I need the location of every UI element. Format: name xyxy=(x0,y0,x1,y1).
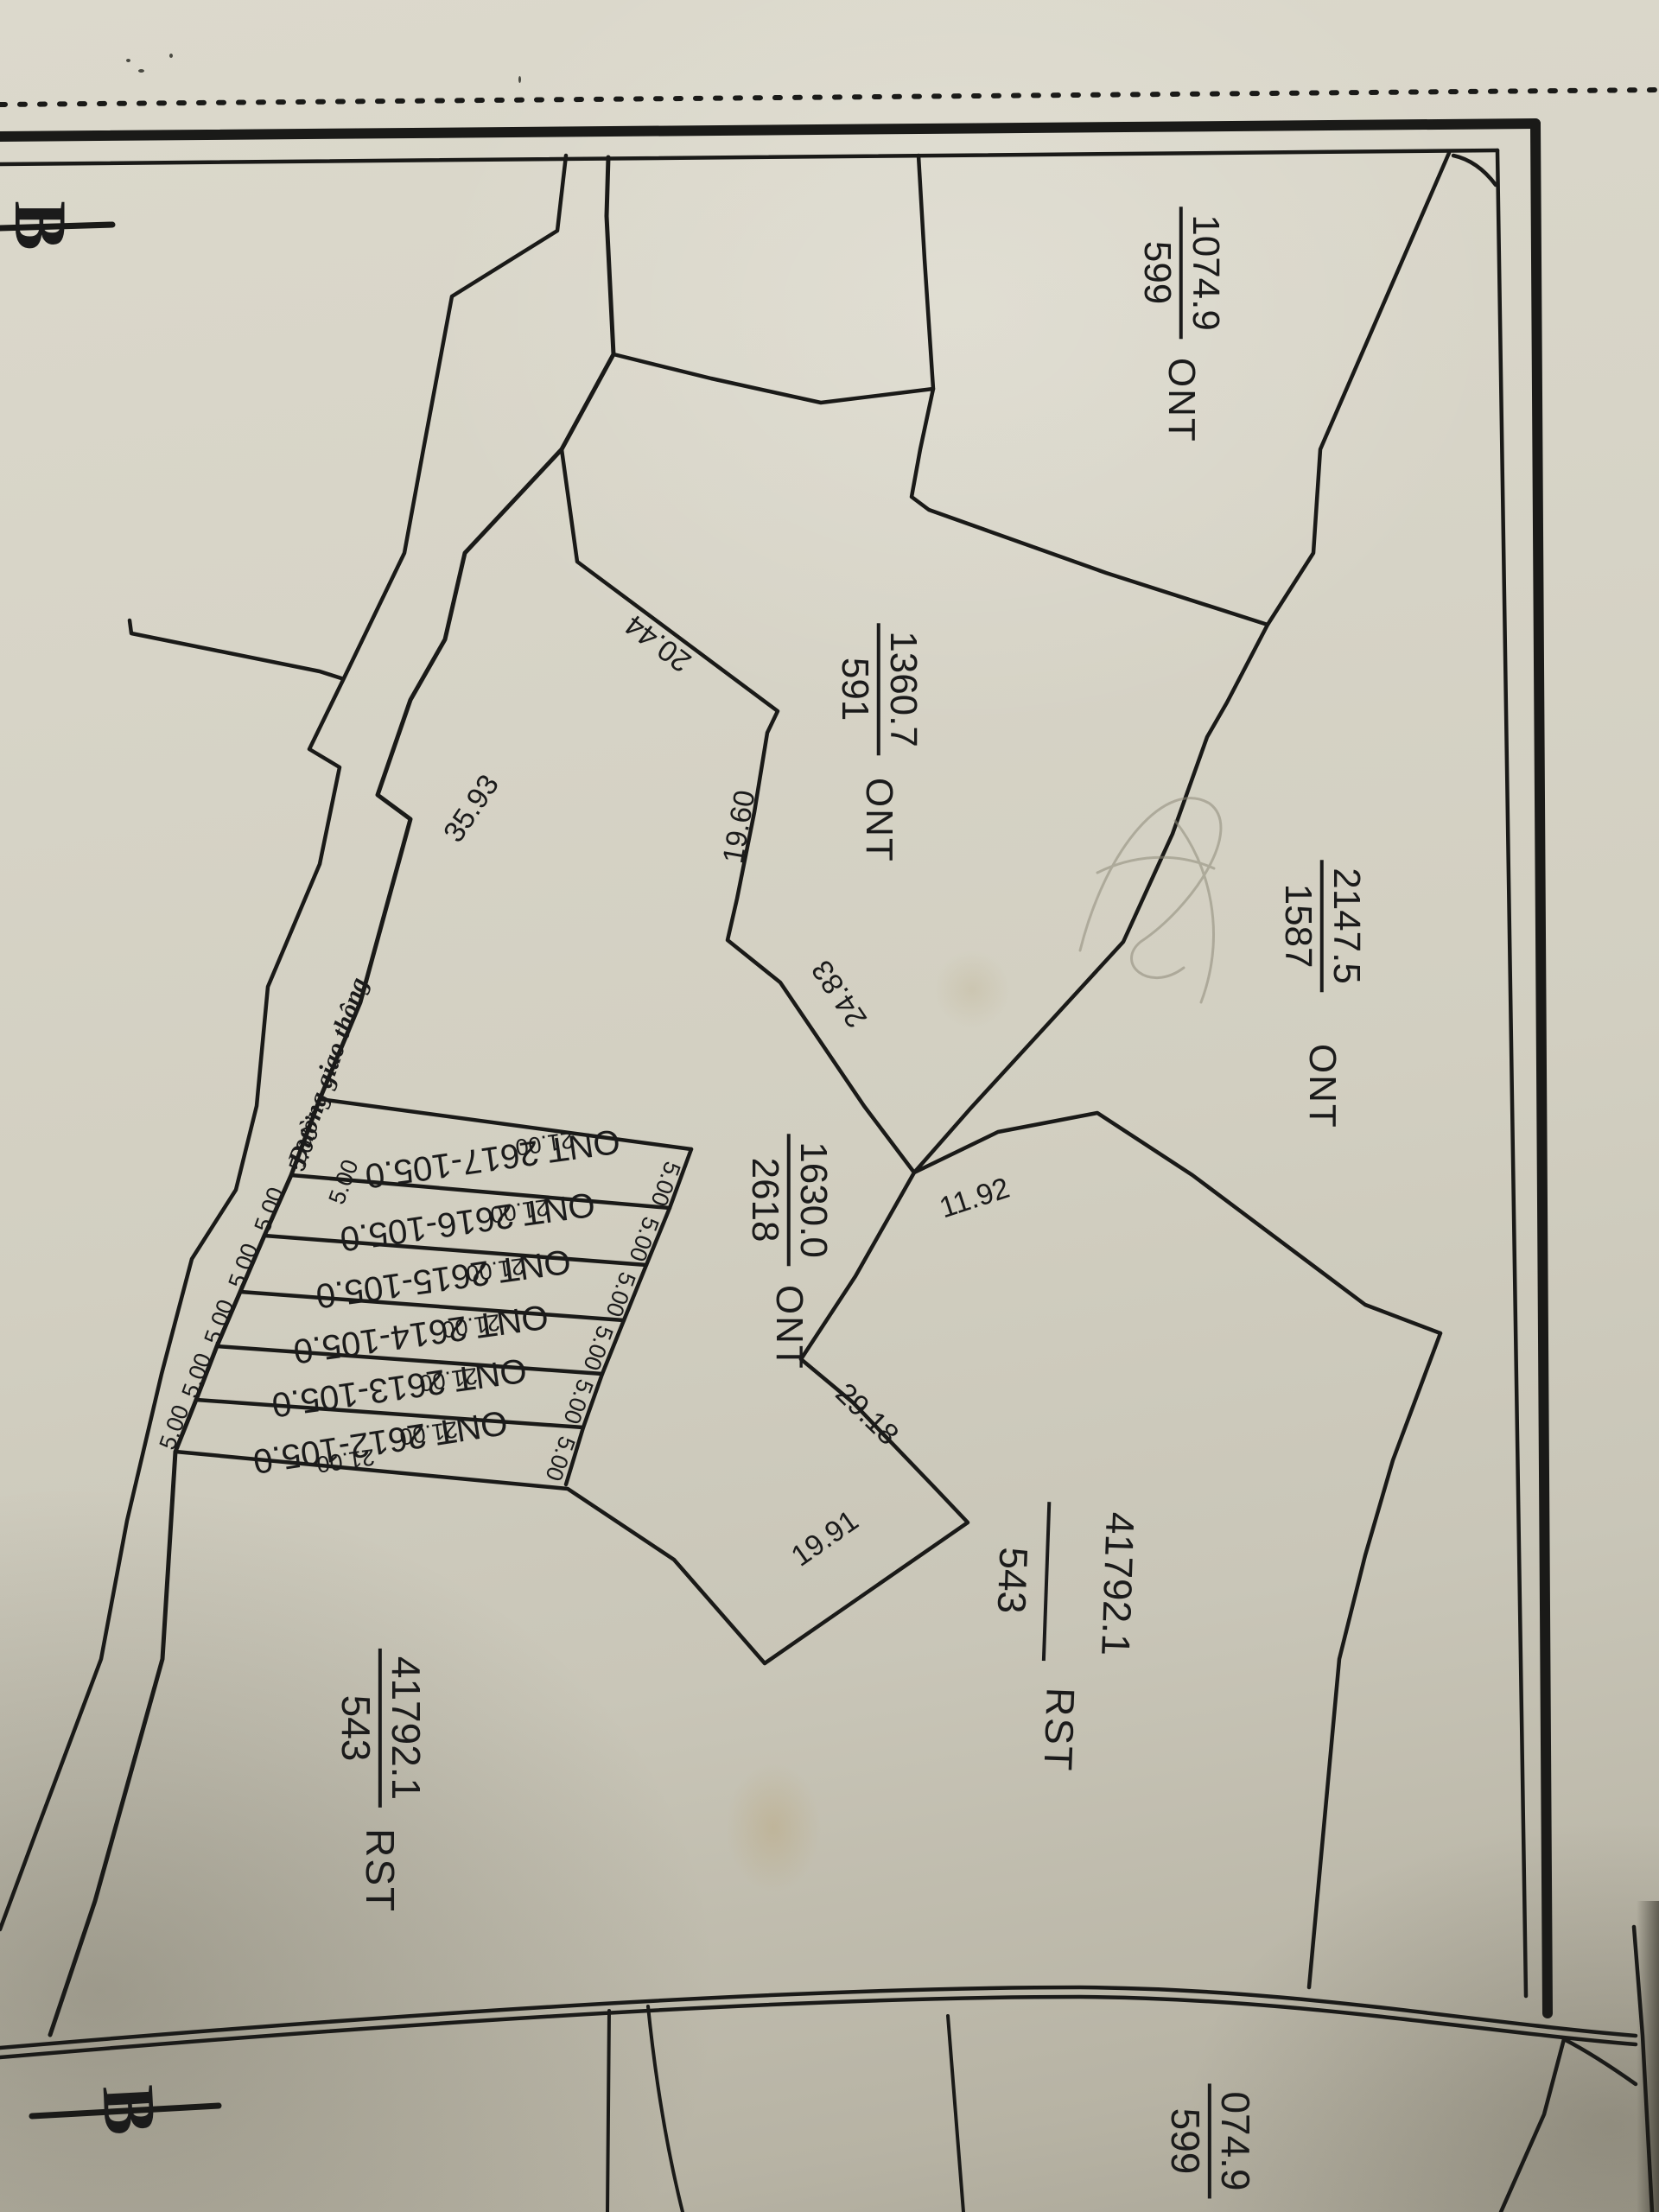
page-edge-shadow xyxy=(1637,1901,1659,2212)
frame-right-thick xyxy=(1535,124,1548,2013)
parcel-fraction: 1074.9 599 xyxy=(1137,207,1225,339)
map-linework xyxy=(0,0,1659,2212)
landuse-code: ONT xyxy=(767,1285,810,1370)
parcel-area: 41792.1 xyxy=(1042,1502,1141,1664)
frame-right-thin xyxy=(1497,150,1526,1996)
parcel-area: 41792.1 xyxy=(378,1649,426,1808)
parcel-label-599-bottom: 074.9 599 xyxy=(1164,2083,1255,2198)
parcel-label-599-top: 1074.9 599 ONT xyxy=(1137,207,1225,442)
parcel-label-543-right: 41792.1 543 RST xyxy=(985,1500,1141,1775)
map-scan-page: 1074.9 599 ONT 1360.7 591 ONT 1630.0 261… xyxy=(0,0,1659,2212)
parcel-label-543-left: 41792.1 543 RST xyxy=(334,1649,426,1913)
parcel-area: 2147.5 xyxy=(1320,860,1366,992)
parcel-label-2618: 1630.0 2618 ONT xyxy=(745,1134,833,1370)
parcel-area: 1630.0 xyxy=(787,1134,833,1266)
parcel-fraction: 074.9 599 xyxy=(1164,2083,1255,2198)
lower-sheet-diag-1 xyxy=(1501,2039,1564,2212)
parcel-number: 543 xyxy=(334,1695,378,1762)
landuse-code: RST xyxy=(357,1828,404,1913)
paper-speck xyxy=(169,54,173,58)
landuse-code: ONT xyxy=(857,778,900,863)
lower-sheet-line-3 xyxy=(948,2016,963,2212)
boundary-1587-west-south xyxy=(1309,1333,1440,1987)
boundary-spur xyxy=(130,620,341,678)
landuse-code: ONT xyxy=(1300,1044,1344,1129)
boundary-strip-bottom xyxy=(175,1452,765,1663)
parcel-number: 543 xyxy=(990,1547,1046,1615)
parcel-fraction: 41792.1 543 xyxy=(988,1500,1141,1664)
paper-speck xyxy=(518,76,521,83)
lower-sheet-line-2 xyxy=(648,2006,683,2212)
parcel-fraction: 2147.5 1587 xyxy=(1278,860,1366,992)
landuse-code: RST xyxy=(1035,1687,1084,1773)
parcel-number: 591 xyxy=(835,658,877,721)
frame-top-thick xyxy=(0,124,1535,137)
landuse-code: ONT xyxy=(1160,358,1203,443)
dotted-separator-line xyxy=(0,90,1659,105)
north-symbol-bottom: B xyxy=(86,2083,175,2138)
boundary-591-north xyxy=(613,354,933,403)
parcel-fraction: 1630.0 2618 xyxy=(745,1134,833,1266)
pencil-signature-scribble xyxy=(1080,798,1221,1002)
frame-top-thin xyxy=(0,150,1497,164)
parcel-area: 1360.7 xyxy=(877,623,923,755)
parcel-label-1587: 2147.5 1587 ONT xyxy=(1278,860,1366,1128)
boundary-1587-north xyxy=(914,1113,1440,1333)
lower-sheet-diag-2 xyxy=(1564,2039,1636,2084)
parcel-label-591: 1360.7 591 ONT xyxy=(835,623,923,862)
paper-speck xyxy=(126,59,130,62)
parcel-number: 1587 xyxy=(1278,884,1320,969)
parcel-number: 2618 xyxy=(745,1158,787,1243)
frame-corner-cut xyxy=(1453,156,1496,185)
parcel-area: 1074.9 xyxy=(1179,207,1225,339)
parcel-fraction: 41792.1 543 xyxy=(334,1649,426,1808)
parcel-number: 599 xyxy=(1137,241,1179,304)
parcel-area: 074.9 xyxy=(1208,2083,1255,2198)
parcel-number: 599 xyxy=(1164,2108,1208,2175)
lower-sheet-line-1 xyxy=(607,2011,609,2212)
road-left-edge xyxy=(0,156,566,1929)
paper-speck xyxy=(138,69,144,73)
north-symbol-top: B xyxy=(0,200,84,250)
parcel-fraction: 1360.7 591 xyxy=(835,623,923,755)
